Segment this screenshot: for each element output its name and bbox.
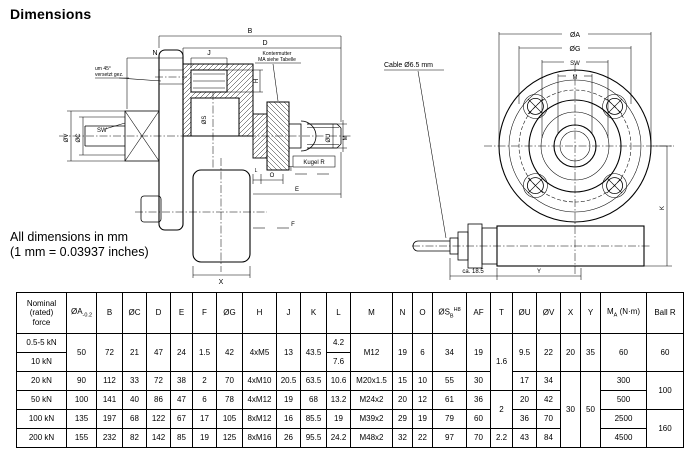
- cell-ma: 500: [601, 391, 647, 410]
- dim-gland-length: ca. 18.5: [462, 269, 484, 275]
- col-header-y: Y: [581, 293, 601, 334]
- col-header-d: D: [147, 293, 171, 334]
- cell-g: 42: [217, 334, 243, 372]
- cell-ball: 160: [647, 410, 684, 448]
- cell-j: 13: [277, 334, 301, 372]
- cell-u: 36: [513, 410, 537, 429]
- col-header-e: E: [171, 293, 193, 334]
- cell-s: 79: [433, 410, 467, 429]
- cell-o: 19: [413, 410, 433, 429]
- front-dimension-labels: ØA ØG SW M K ca. 18.5 Y: [462, 32, 666, 275]
- cell-h: 8xM12: [243, 410, 277, 429]
- dim-M: M: [573, 75, 578, 81]
- cell-af: 70: [467, 429, 491, 448]
- cable-label: Cable Ø6.5 mm: [384, 62, 433, 69]
- cell-t: 2.2: [491, 429, 513, 448]
- flange-outline: [141, 50, 187, 230]
- bolt-hole: [523, 94, 547, 118]
- dim-L: L: [255, 168, 258, 174]
- dim-F: F: [291, 222, 295, 228]
- cell-n: 29: [393, 410, 413, 429]
- datasheet-page: { "page": { "title": "Dimensions", "note…: [0, 0, 686, 453]
- cell-h: 4xM10: [243, 372, 277, 391]
- cell-m: M20x1.5: [351, 372, 393, 391]
- cell-l: 13.2: [327, 391, 351, 410]
- front-dimension-lines: [450, 32, 672, 280]
- cell-k: 85.5: [301, 410, 327, 429]
- cell-a: 135: [67, 410, 97, 429]
- cell-e: 47: [171, 391, 193, 410]
- col-header-k: K: [301, 293, 327, 334]
- cell-s: 55: [433, 372, 467, 391]
- locknut-section: [267, 102, 289, 170]
- offset-note-line2: versetzt gez.: [95, 72, 123, 78]
- dim-B: B: [248, 28, 253, 35]
- dim-H: H: [254, 79, 260, 83]
- col-header-ball: Ball R: [647, 293, 684, 334]
- header-row: Nominal (rated) force ØA-0.2 B ØC D E F …: [17, 293, 684, 334]
- cell-c: 68: [123, 410, 147, 429]
- col-header-j: J: [277, 293, 301, 334]
- cell-b: 72: [97, 334, 123, 372]
- cell-c: 33: [123, 372, 147, 391]
- cell-force: 20 kN: [17, 372, 67, 391]
- cell-n: 32: [393, 429, 413, 448]
- cell-b: 232: [97, 429, 123, 448]
- cell-k: 68: [301, 391, 327, 410]
- col-header-t: T: [491, 293, 513, 334]
- cell-g: 78: [217, 391, 243, 410]
- cell-h: 4xM5: [243, 334, 277, 372]
- cell-v: 70: [537, 410, 561, 429]
- table-row: 20 kN 90 112 33 72 38 2 70 4xM10 20.5 63…: [17, 372, 684, 391]
- cell-force: 100 kN: [17, 410, 67, 429]
- col-header-a: ØA-0.2: [67, 293, 97, 334]
- dim-Y: Y: [537, 269, 541, 275]
- col-header-v: ØV: [537, 293, 561, 334]
- col-header-n: N: [393, 293, 413, 334]
- cell-n: 15: [393, 372, 413, 391]
- dim-U: ØU: [326, 134, 332, 143]
- bolt-hole: [523, 174, 547, 198]
- cell-b: 141: [97, 391, 123, 410]
- col-header-o: O: [413, 293, 433, 334]
- cell-k: 43.5: [301, 334, 327, 372]
- col-header-f: F: [193, 293, 217, 334]
- col-header-m: M: [351, 293, 393, 334]
- cell-f: 19: [193, 429, 217, 448]
- cell-u: 17: [513, 372, 537, 391]
- cell-j: 26: [277, 429, 301, 448]
- cell-f: 1.5: [193, 334, 217, 372]
- cell-b: 197: [97, 410, 123, 429]
- cell-s: 97: [433, 429, 467, 448]
- dim-O: O: [270, 173, 275, 179]
- cell-f: 17: [193, 410, 217, 429]
- dim-G: ØG: [570, 46, 581, 53]
- body-section: [183, 64, 253, 136]
- cell-af: 30: [467, 372, 491, 391]
- cell-l: 10.6: [327, 372, 351, 391]
- cell-f: 2: [193, 372, 217, 391]
- cable-note: Cable Ø6.5 mm: [384, 62, 446, 238]
- dim-M: M: [343, 136, 349, 141]
- cell-e: 67: [171, 410, 193, 429]
- cell-ma: 4500: [601, 429, 647, 448]
- cell-l: 19: [327, 410, 351, 429]
- cell-m: M39x2: [351, 410, 393, 429]
- dim-SW: SW: [570, 61, 580, 67]
- cell-y: 50: [581, 372, 601, 448]
- cell-ma: 2500: [601, 410, 647, 429]
- dim-N: N: [152, 50, 157, 57]
- cell-t: 2: [491, 391, 513, 429]
- cell-u: 9.5: [513, 334, 537, 372]
- cell-k: 63.5: [301, 372, 327, 391]
- col-header-g: ØG: [217, 293, 243, 334]
- cell-a: 50: [67, 334, 97, 372]
- dim-S: ØS: [202, 116, 208, 125]
- cell-h: 4xM12: [243, 391, 277, 410]
- body-side-view: [413, 224, 644, 268]
- cell-s: 61: [433, 391, 467, 410]
- cell-n: 20: [393, 391, 413, 410]
- cell-a: 100: [67, 391, 97, 410]
- ball-radius-label: Kugel R: [303, 160, 325, 166]
- cell-af: 19: [467, 334, 491, 372]
- cell-s: 34: [433, 334, 467, 372]
- col-header-h: H: [243, 293, 277, 334]
- ball-radius-callout: Kugel R: [293, 156, 335, 167]
- bolt-hole: [603, 174, 627, 198]
- cell-ma: 60: [601, 334, 647, 372]
- cell-force: 10 kN: [17, 353, 67, 372]
- cell-n: 19: [393, 334, 413, 372]
- dim-V: ØV: [64, 134, 70, 143]
- cell-v: 34: [537, 372, 561, 391]
- cell-m: M24x2: [351, 391, 393, 410]
- body-hub: [253, 114, 267, 158]
- col-header-force: Nominal (rated) force: [17, 293, 67, 334]
- dim-C: ØC: [76, 133, 82, 143]
- cell-m: M12: [351, 334, 393, 372]
- dim-X: X: [219, 279, 224, 286]
- cell-g: 70: [217, 372, 243, 391]
- col-header-s: ØSBH8: [433, 293, 467, 334]
- cell-force: 0.5-5 kN: [17, 334, 67, 353]
- col-header-b: B: [97, 293, 123, 334]
- dim-E: E: [295, 187, 299, 193]
- table-row: 0.5-5 kN 50 72 21 47 24 1.5 42 4xM5 13 4…: [17, 334, 684, 353]
- cell-b: 112: [97, 372, 123, 391]
- cell-a: 90: [67, 372, 97, 391]
- cell-d: 86: [147, 391, 171, 410]
- cell-t: 1.6: [491, 334, 513, 391]
- cell-f: 6: [193, 391, 217, 410]
- cell-g: 125: [217, 429, 243, 448]
- locknut-note: Kontermutter MA siehe Tabelle: [255, 51, 301, 101]
- col-header-u: ØU: [513, 293, 537, 334]
- cell-e: 38: [171, 372, 193, 391]
- col-header-c: ØC: [123, 293, 147, 334]
- col-header-x: X: [561, 293, 581, 334]
- cell-j: 19: [277, 391, 301, 410]
- cell-e: 85: [171, 429, 193, 448]
- cell-ball: 100: [647, 372, 684, 410]
- dim-J: J: [207, 50, 211, 57]
- cell-u: 20: [513, 391, 537, 410]
- locknut-note-line2: MA siehe Tabelle: [258, 57, 296, 63]
- cell-v: 84: [537, 429, 561, 448]
- cell-force: 50 kN: [17, 391, 67, 410]
- col-header-l: L: [327, 293, 351, 334]
- dim-A: ØA: [570, 32, 580, 39]
- cell-a: 155: [67, 429, 97, 448]
- cell-d: 47: [147, 334, 171, 372]
- cell-k: 95.5: [301, 429, 327, 448]
- cell-af: 60: [467, 410, 491, 429]
- cell-y: 35: [581, 334, 601, 372]
- cell-o: 12: [413, 391, 433, 410]
- cell-force: 200 kN: [17, 429, 67, 448]
- cell-g: 105: [217, 410, 243, 429]
- cell-x: 30: [561, 372, 581, 448]
- cell-d: 142: [147, 429, 171, 448]
- cell-c: 21: [123, 334, 147, 372]
- cell-h: 8xM16: [243, 429, 277, 448]
- cell-o: 10: [413, 372, 433, 391]
- cell-x: 20: [561, 334, 581, 372]
- offset-note: um 45° versetzt gez.: [95, 66, 161, 81]
- col-header-af: AF: [467, 293, 491, 334]
- cell-ball: 60: [647, 334, 684, 372]
- cell-v: 42: [537, 391, 561, 410]
- dimension-table: Nominal (rated) force ØA-0.2 B ØC D E F …: [16, 292, 684, 448]
- cell-c: 40: [123, 391, 147, 410]
- bolt-hole: [603, 94, 627, 118]
- cell-ma: 300: [601, 372, 647, 391]
- cell-l: 24.2: [327, 429, 351, 448]
- dim-K: K: [660, 206, 666, 210]
- cell-v: 22: [537, 334, 561, 372]
- cell-j: 16: [277, 410, 301, 429]
- col-header-ma: MA (N·m): [601, 293, 647, 334]
- cell-u: 43: [513, 429, 537, 448]
- front-view-drawing: Cable Ø6.5 mm ØA ØG SW M K ca. 18.5 Y: [382, 18, 682, 290]
- cell-l: 4.2: [327, 334, 351, 353]
- cell-m: M48x2: [351, 429, 393, 448]
- dim-D: D: [262, 40, 267, 47]
- cell-af: 36: [467, 391, 491, 410]
- cell-o: 6: [413, 334, 433, 372]
- side-section-drawing: Kugel R um 45° versetzt gez. Kontermutte…: [55, 18, 355, 290]
- tapped-hole: [193, 74, 225, 88]
- cell-o: 22: [413, 429, 433, 448]
- cell-e: 24: [171, 334, 193, 372]
- dim-T: T: [289, 167, 293, 173]
- cell-d: 122: [147, 410, 171, 429]
- cell-c: 82: [123, 429, 147, 448]
- lower-body: [135, 158, 267, 272]
- cell-j: 20.5: [277, 372, 301, 391]
- cell-l: 7.6: [327, 353, 351, 372]
- cell-d: 72: [147, 372, 171, 391]
